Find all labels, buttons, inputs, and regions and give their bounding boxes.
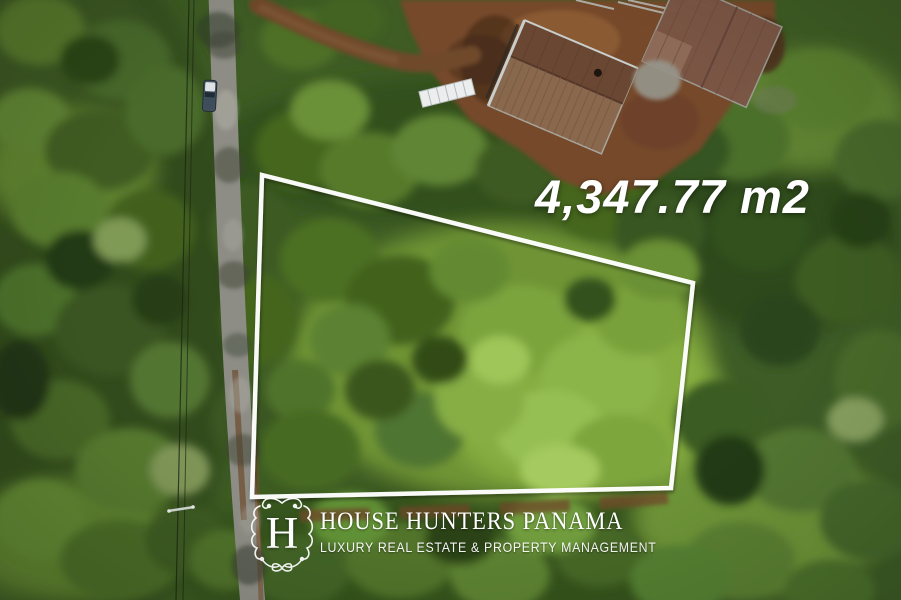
- logo-monogram: H: [246, 496, 318, 574]
- logo-monogram-letter: H: [246, 509, 318, 557]
- logo-text-block: HOUSE HUNTERS PANAMA LUXURY REAL ESTATE …: [320, 508, 666, 555]
- parked-van: [202, 80, 217, 112]
- house-hunters-panama-logo: H HOUSE HUNTERS PANAMA LUXURY REAL ESTAT…: [246, 494, 666, 580]
- logo-title: HOUSE HUNTERS PANAMA: [320, 508, 631, 536]
- concrete-patch: [633, 60, 681, 100]
- aerial-listing-photo: 4,347.77 m2 H HOUSE HUNTERS PANAMA: [0, 0, 901, 600]
- logo-subtitle: LUXURY REAL ESTATE & PROPERTY MANAGEMENT: [320, 539, 624, 555]
- lot-area-label: 4,347.77 m2: [535, 169, 810, 224]
